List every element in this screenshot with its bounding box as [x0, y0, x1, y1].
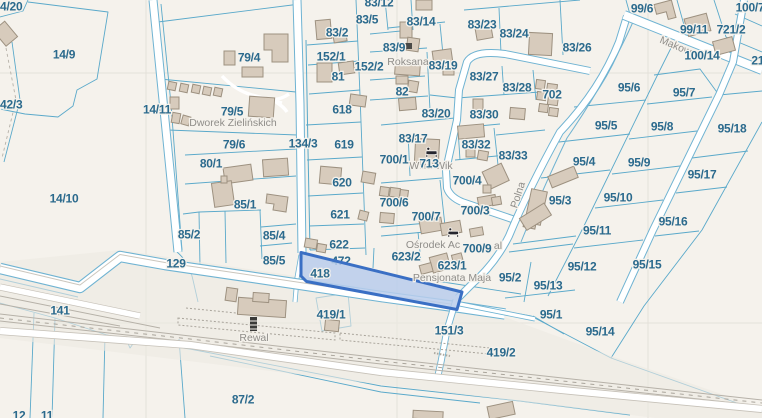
svg-text:83/28: 83/28	[503, 81, 532, 95]
svg-text:87/2: 87/2	[232, 393, 255, 407]
svg-text:14/20: 14/20	[0, 0, 23, 14]
svg-text:151/3: 151/3	[435, 324, 464, 338]
svg-text:95/13: 95/13	[534, 279, 563, 293]
svg-text:85/4: 85/4	[263, 229, 286, 243]
svg-text:83/2: 83/2	[326, 26, 349, 40]
svg-text:95/4: 95/4	[573, 155, 596, 169]
svg-text:702: 702	[542, 88, 562, 102]
svg-text:713: 713	[419, 157, 439, 171]
svg-text:83/14: 83/14	[407, 15, 436, 29]
svg-text:95/6: 95/6	[618, 81, 641, 95]
svg-text:81: 81	[332, 70, 345, 84]
svg-text:14/10: 14/10	[50, 192, 79, 206]
svg-text:95/15: 95/15	[633, 258, 662, 272]
svg-text:83/23: 83/23	[468, 18, 497, 32]
svg-text:129: 129	[166, 257, 186, 271]
svg-text:217: 217	[751, 54, 762, 68]
svg-text:14/9: 14/9	[53, 48, 76, 62]
svg-text:619: 619	[334, 138, 354, 152]
svg-text:95/18: 95/18	[718, 122, 747, 136]
svg-text:95/10: 95/10	[604, 191, 633, 205]
svg-text:85/1: 85/1	[234, 198, 257, 212]
svg-text:618: 618	[332, 103, 352, 117]
svg-text:100/14: 100/14	[684, 49, 720, 63]
svg-text:419/1: 419/1	[317, 308, 346, 322]
svg-text:12: 12	[13, 409, 26, 418]
svg-text:11: 11	[41, 409, 54, 418]
svg-text:95/2: 95/2	[499, 271, 522, 285]
svg-text:85/5: 85/5	[263, 254, 286, 268]
svg-text:95/7: 95/7	[673, 86, 696, 100]
svg-text:95/8: 95/8	[651, 120, 674, 134]
svg-text:83/27: 83/27	[470, 70, 499, 84]
svg-text:95/17: 95/17	[688, 168, 717, 182]
svg-text:141: 141	[50, 304, 70, 318]
svg-text:Pensjonata Maja: Pensjonata Maja	[413, 272, 491, 284]
svg-text:623/2: 623/2	[392, 250, 421, 264]
svg-text:83/33: 83/33	[499, 149, 528, 163]
svg-text:82: 82	[396, 85, 409, 99]
svg-text:83/9: 83/9	[383, 41, 406, 55]
svg-text:95/5: 95/5	[595, 119, 618, 133]
svg-text:623/1: 623/1	[438, 259, 467, 273]
svg-text:79/6: 79/6	[223, 138, 246, 152]
svg-text:99/11: 99/11	[680, 23, 709, 37]
svg-text:142/3: 142/3	[0, 98, 23, 112]
svg-text:152/2: 152/2	[355, 60, 384, 74]
svg-text:79/4: 79/4	[238, 51, 261, 65]
svg-text:721/2: 721/2	[717, 23, 746, 37]
svg-text:95/3: 95/3	[549, 194, 572, 208]
svg-text:83/19: 83/19	[429, 59, 458, 73]
svg-text:700/1: 700/1	[380, 153, 409, 167]
svg-text:95/16: 95/16	[659, 215, 688, 229]
svg-text:al: al	[494, 240, 502, 252]
svg-text:621: 621	[330, 208, 350, 222]
svg-text:622: 622	[329, 238, 349, 252]
svg-text:83/30: 83/30	[470, 108, 499, 122]
svg-text:100/7: 100/7	[736, 1, 762, 15]
svg-text:14/11: 14/11	[143, 103, 172, 117]
svg-text:95/1: 95/1	[540, 308, 563, 322]
svg-text:Rewal: Rewal	[239, 332, 268, 344]
svg-text:134/3: 134/3	[289, 137, 318, 151]
svg-text:700/6: 700/6	[380, 196, 409, 210]
svg-text:85/2: 85/2	[178, 228, 201, 242]
svg-text:419/2: 419/2	[487, 346, 516, 360]
svg-text:Dworek Zielińskich: Dworek Zielińskich	[189, 117, 277, 129]
svg-text:700/3: 700/3	[461, 204, 490, 218]
svg-text:95/12: 95/12	[568, 260, 597, 274]
svg-text:99/6: 99/6	[631, 2, 654, 16]
svg-text:80/1: 80/1	[200, 157, 223, 171]
svg-text:700/7: 700/7	[412, 210, 441, 224]
svg-text:83/17: 83/17	[399, 132, 428, 146]
svg-text:418: 418	[310, 267, 330, 281]
svg-text:95/14: 95/14	[586, 325, 615, 339]
svg-text:83/12: 83/12	[365, 0, 394, 10]
svg-text:83/20: 83/20	[422, 107, 451, 121]
svg-text:Roksana: Roksana	[387, 56, 429, 68]
svg-text:83/32: 83/32	[462, 138, 491, 152]
svg-text:83/5: 83/5	[356, 13, 379, 27]
svg-text:700/4: 700/4	[453, 174, 482, 188]
svg-text:620: 620	[332, 176, 352, 190]
svg-text:700/9: 700/9	[463, 242, 492, 256]
svg-text:83/24: 83/24	[500, 27, 529, 41]
svg-text:83/26: 83/26	[563, 41, 592, 55]
svg-text:95/11: 95/11	[583, 224, 612, 238]
svg-text:95/9: 95/9	[628, 156, 651, 170]
svg-text:79/5: 79/5	[221, 105, 244, 119]
svg-text:152/1: 152/1	[317, 50, 346, 64]
